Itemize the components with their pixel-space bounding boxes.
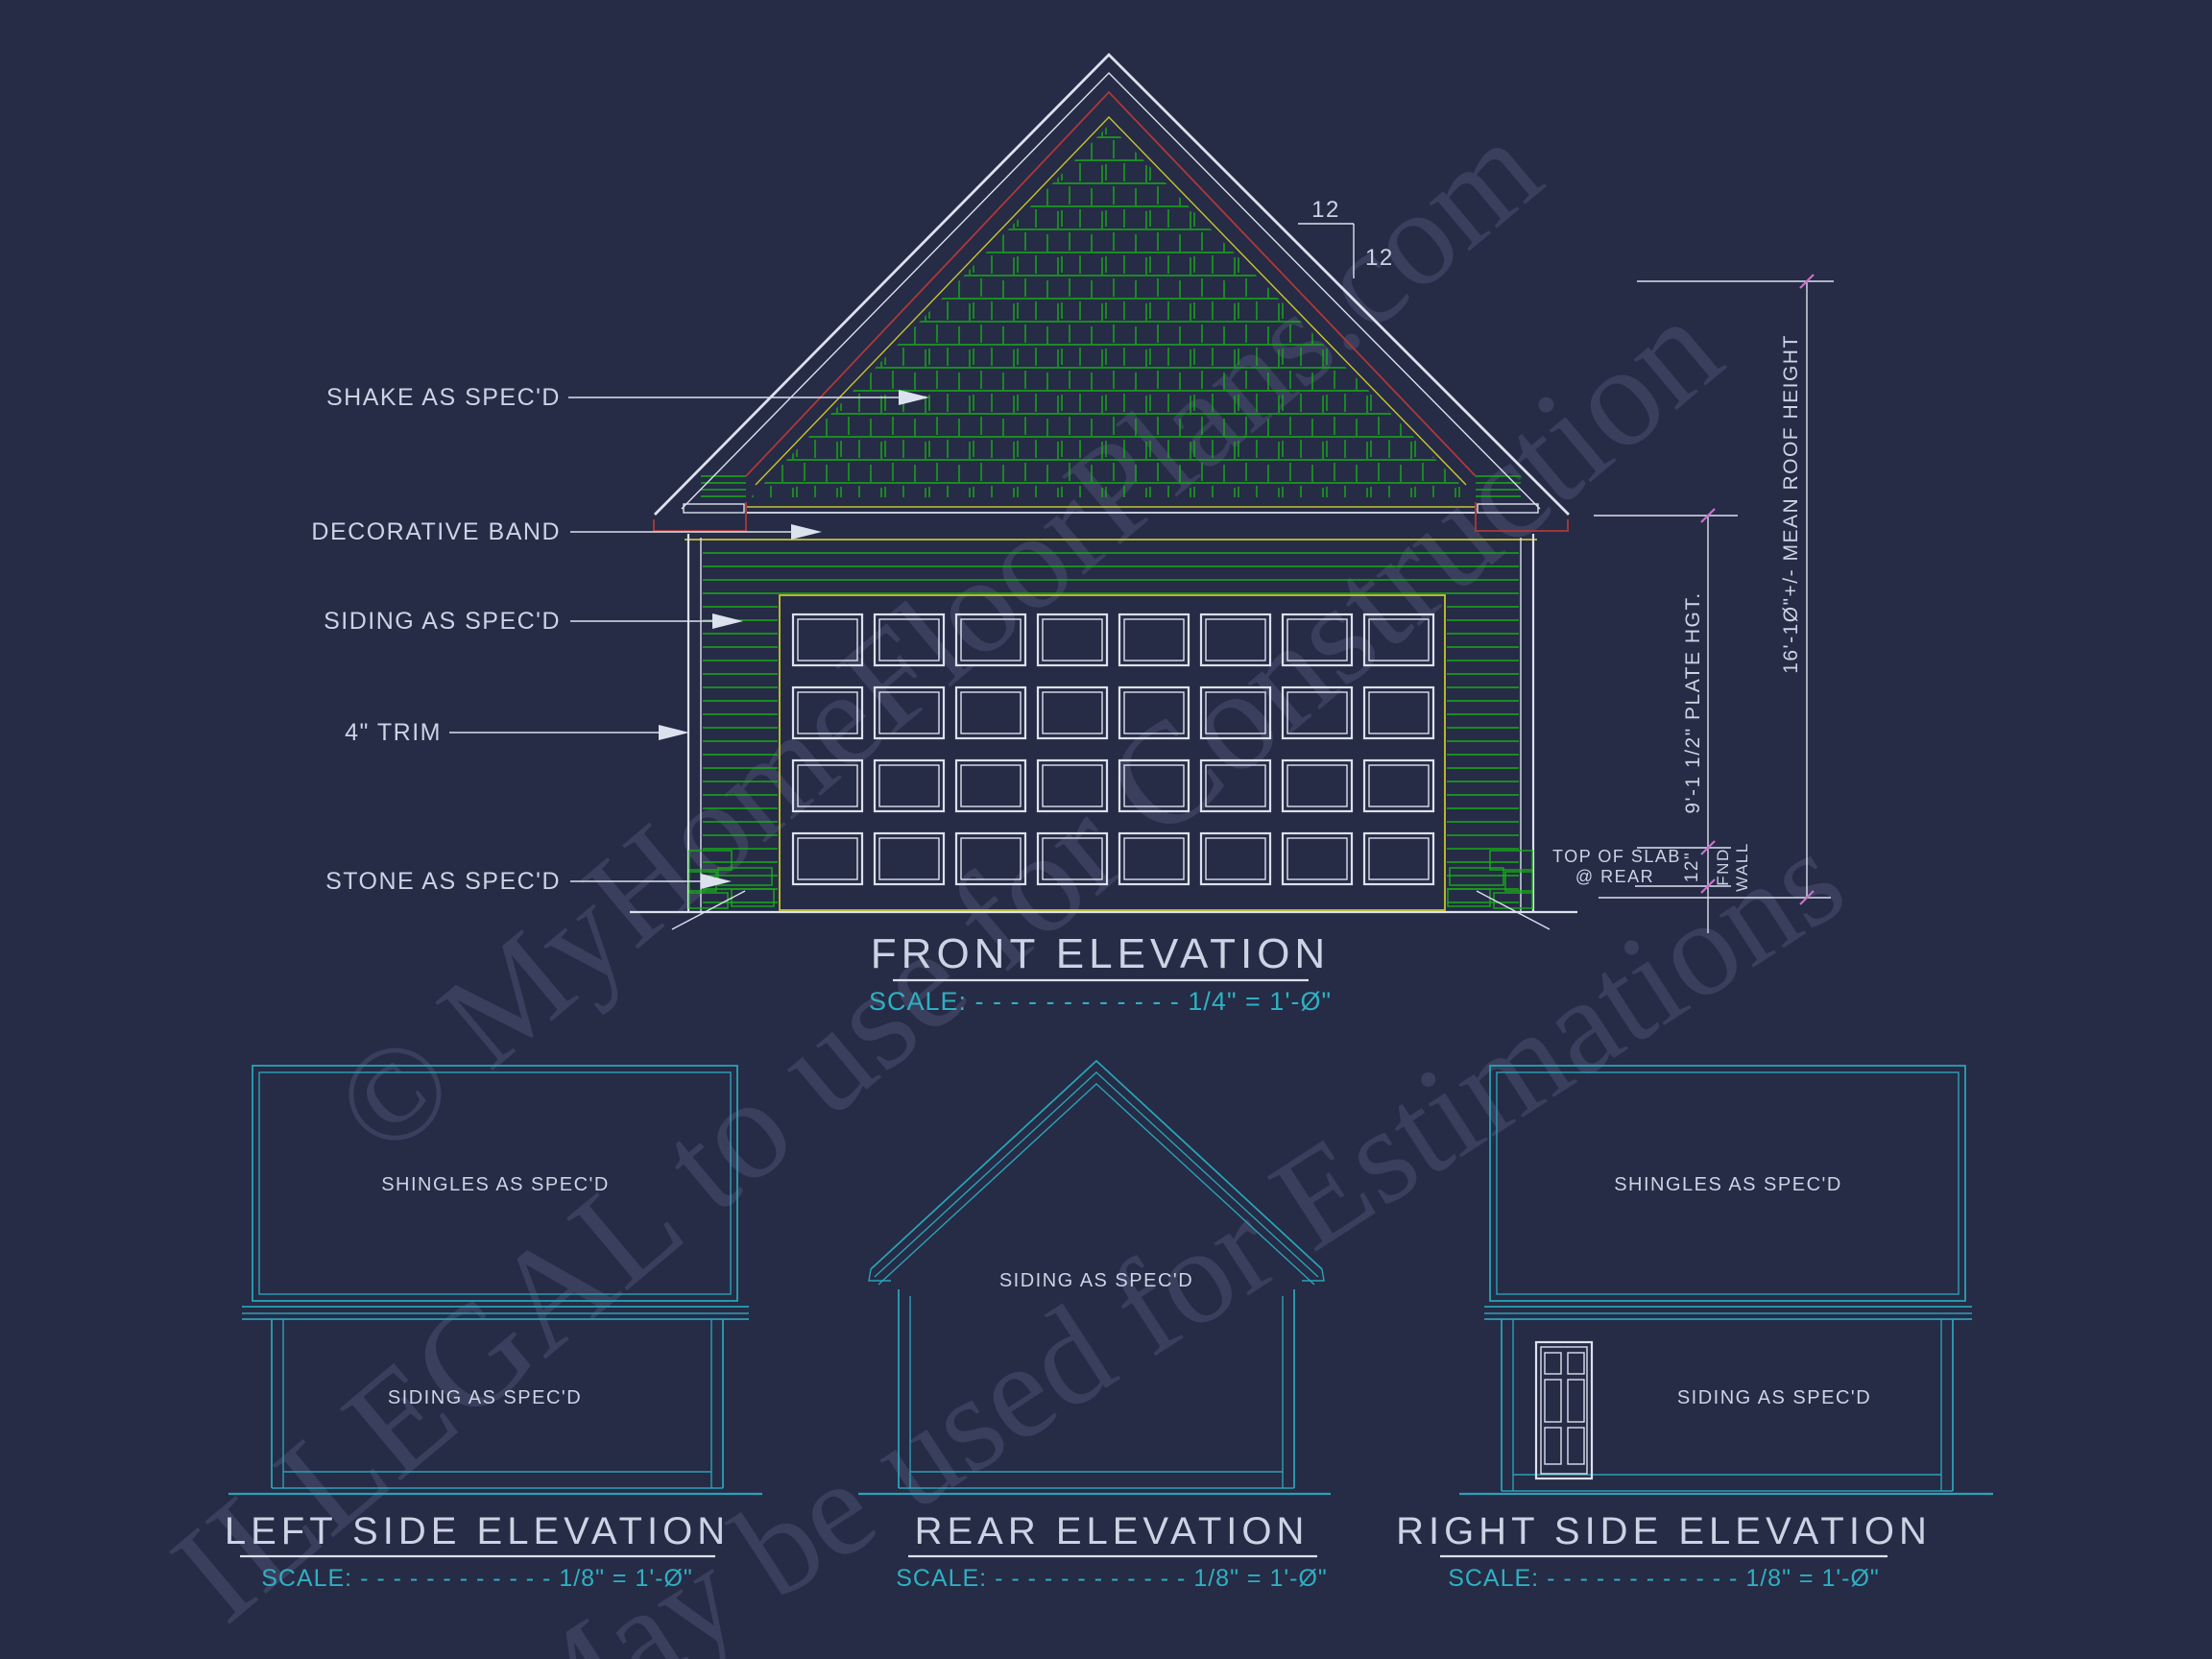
rear-elevation-scale: SCALE: - - - - - - - - - - - - 1/8" = 1'… [896,1565,1328,1592]
arrowhead-icon [659,725,689,740]
wall-material-label: SIDING AS SPEC'D [1677,1387,1871,1408]
rear-elevation-title: REAR ELEVATION [915,1510,1310,1552]
left-side-elevation-title: LEFT SIDE ELEVATION [225,1510,730,1552]
grade-step-right [1477,891,1550,929]
front-elevation-title: FRONT ELEVATION [871,930,1330,977]
left-side-elevation-scale: SCALE: - - - - - - - - - - - - 1/8" = 1'… [261,1565,693,1592]
label-trim: 4" TRIM [345,719,442,746]
dim-foundation-offset: 12" [1682,852,1702,882]
roof-material-label: SHINGLES AS SPEC'D [1614,1174,1842,1195]
wall-material-label: SIDING AS SPEC'D [388,1387,582,1408]
arrowhead-icon [791,524,822,540]
dim-top-of-slab-1: TOP OF SLAB [1552,847,1681,866]
pitch-rise: 12 [1311,197,1340,223]
label-decorative-band: DECORATIVE BAND [311,518,561,545]
dim-fnd: FND [1714,848,1732,885]
entry-door [1536,1342,1592,1479]
front-elevation-scale: SCALE: - - - - - - - - - - - - 1/4" = 1'… [869,987,1332,1016]
cornice-return-red-left [654,502,746,531]
label-stone: STONE AS SPEC'D [325,868,561,895]
label-shake: SHAKE AS SPEC'D [326,384,561,411]
dim-top-of-slab-2: @ REAR [1575,867,1654,886]
dim-plate-height: 9'-1 1/2" PLATE HGT. [1682,591,1704,813]
right-side-elevation-scale: SCALE: - - - - - - - - - - - - 1/8" = 1'… [1448,1565,1880,1592]
blueprint-sheet: © MyHomeFloorPlans.com ILLEGAL to use fo… [0,0,2212,1659]
arrowhead-icon [712,613,743,629]
label-siding: SIDING AS SPEC'D [324,608,561,635]
wall-material-label: SIDING AS SPEC'D [999,1270,1193,1291]
dim-wall: WALL [1733,842,1751,892]
roof-material-label: SHINGLES AS SPEC'D [381,1174,610,1195]
right-side-elevation-title: RIGHT SIDE ELEVATION [1396,1510,1932,1552]
stone-base-right [1448,851,1532,908]
dim-mean-roof-height: 16'-1Ø"+/- MEAN ROOF HEIGHT [1780,334,1802,674]
pitch-run: 12 [1365,245,1394,271]
cornice-return-board-left [684,504,744,513]
